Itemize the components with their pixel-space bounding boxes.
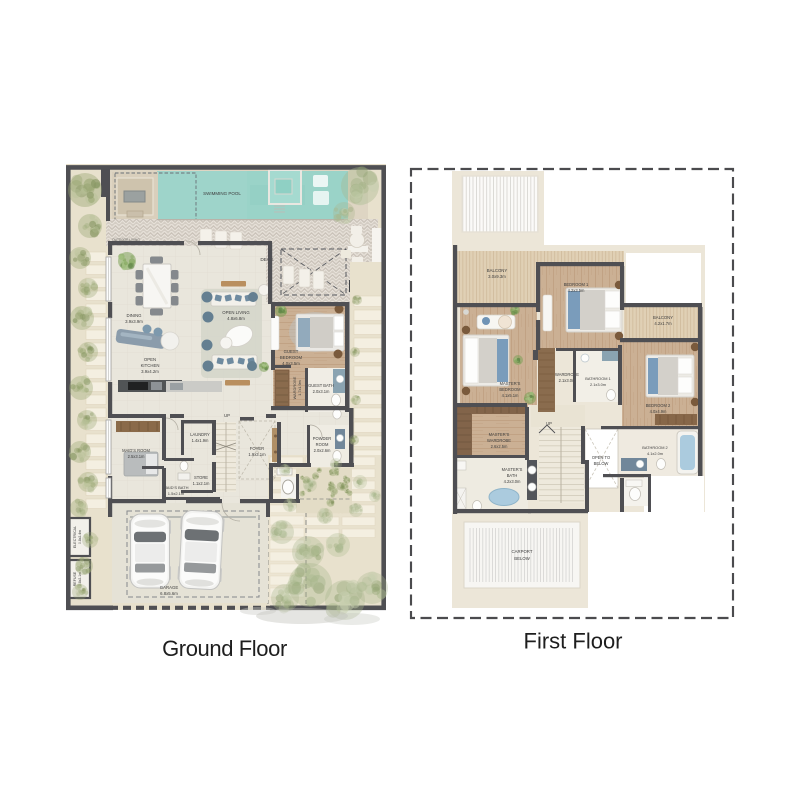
svg-text:GARAGE: GARAGE [160,585,179,590]
svg-text:BALCONY: BALCONY [653,315,673,320]
svg-text:6.8x5.6m: 6.8x5.6m [160,591,178,596]
svg-text:CARPORT: CARPORT [512,549,533,554]
svg-text:4.8x6.8m: 4.8x6.8m [227,316,245,321]
svg-text:BEDROOM 2: BEDROOM 2 [646,403,671,408]
svg-text:BELOW: BELOW [514,556,530,561]
svg-text:REFUSE: REFUSE [73,571,77,586]
svg-text:4.2x3.5m: 4.2x3.5m [568,288,585,293]
svg-text:ROOM: ROOM [316,442,329,447]
svg-text:3.9x4.2m: 3.9x4.2m [141,369,159,374]
svg-text:4.0x4.9m: 4.0x4.9m [650,409,667,414]
svg-text:MAID’S ROOM: MAID’S ROOM [122,448,150,453]
svg-text:UP: UP [224,413,230,418]
svg-text:0.8x2.4m: 0.8x2.4m [78,530,82,544]
svg-text:2.1x3.0m: 2.1x3.0m [590,382,606,387]
svg-text:2.0x2.6m: 2.0x2.6m [314,448,331,453]
svg-text:2.5x3.1m: 2.5x3.1m [128,454,145,459]
svg-text:BELOW: BELOW [594,461,609,466]
svg-text:WARDROBE: WARDROBE [292,376,297,399]
svg-text:DECK: DECK [260,257,274,263]
svg-text:GUEST: GUEST [284,349,299,354]
svg-text:4.1x2.0m: 4.1x2.0m [647,451,663,456]
svg-text:GUEST BATH: GUEST BATH [308,383,334,388]
svg-text:2.6x2.5m: 2.6x2.5m [491,444,508,449]
svg-text:BEDROOM: BEDROOM [280,355,303,360]
svg-text:BALCONY: BALCONY [487,268,508,273]
svg-text:BATHROOM 2: BATHROOM 2 [642,445,667,450]
svg-text:1.9x3.1m: 1.9x3.1m [248,452,266,457]
svg-text:BATH: BATH [507,473,518,478]
svg-text:4.1x5.1m: 4.1x5.1m [502,393,519,398]
svg-text:4.2x1.7m: 4.2x1.7m [654,321,672,326]
svg-text:BATHROOM 1: BATHROOM 1 [585,376,610,381]
svg-text:MASTER’S: MASTER’S [500,381,521,386]
svg-text:BEDROOM: BEDROOM [499,387,521,392]
svg-text:WARDROBE: WARDROBE [487,438,511,443]
svg-text:OPEN: OPEN [144,357,156,362]
svg-text:1.4x1.9m: 1.4x1.9m [192,438,209,443]
svg-text:4.2x3.0m: 4.2x3.0m [504,479,521,484]
svg-text:KITCHEN: KITCHEN [141,363,160,368]
svg-text:2.0x3.1m: 2.0x3.1m [313,389,330,394]
svg-text:3.0x9.3m: 3.0x9.3m [488,274,506,279]
svg-text:First Floor: First Floor [524,629,623,654]
svg-text:OPEN LIVING: OPEN LIVING [222,310,250,315]
svg-text:STORE: STORE [194,475,208,480]
svg-text:SWIMMING POOL: SWIMMING POOL [203,191,241,196]
svg-text:BEDROOM 1: BEDROOM 1 [564,282,589,287]
svg-text:FOYER: FOYER [250,446,264,451]
svg-text:1.1x2.1m: 1.1x2.1m [193,481,210,486]
svg-text:DINING: DINING [126,313,142,318]
svg-text:MAID’S BATH: MAID’S BATH [163,485,188,490]
svg-text:3.9x3.9m: 3.9x3.9m [125,319,143,324]
svg-text:LAUNDRY: LAUNDRY [190,432,210,437]
svg-text:MASTER’S: MASTER’S [489,432,510,437]
svg-text:MASTER’S: MASTER’S [502,467,523,472]
svg-text:OPEN TO: OPEN TO [592,455,610,460]
svg-text:1.7x1.9m: 1.7x1.9m [298,380,302,395]
svg-text:Ground Floor: Ground Floor [162,636,287,661]
svg-text:ELECTRICAL: ELECTRICAL [73,526,77,548]
